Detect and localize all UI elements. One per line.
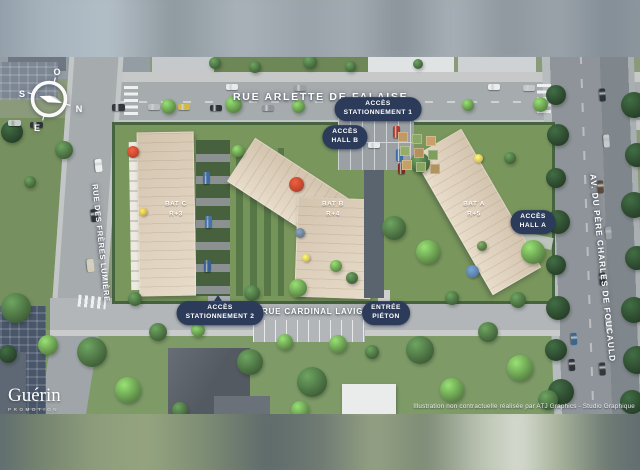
compass-e: E — [34, 123, 40, 133]
entree-pieton-badge: ENTRÉE PIÉTON — [362, 301, 410, 325]
building-label-bat-b: BAT B R+4 — [322, 199, 344, 218]
access-hall-b-badge: ACCÈS HALL B — [322, 125, 367, 149]
access-hall-a-badge: ACCÈS HALL A — [511, 210, 556, 234]
site-plan-image: RUE ARLETTE DE FALAISE RUE CARDINAL LAVI… — [0, 0, 640, 470]
compass-rose-icon: O S E N — [17, 67, 83, 133]
compass-o: O — [53, 67, 60, 77]
illustration-credit: Illustration non contractuelle réalisée … — [413, 403, 635, 410]
access-stationnement-1-badge: ACCÈS STATIONNEMENT 1 — [335, 97, 422, 121]
developer-logo-subtitle: PROMOTION — [8, 407, 61, 412]
compass-n: N — [76, 104, 83, 114]
street-name-av-du-pere-charles-de-foucauld: AV. DU PÈRE CHARLES DE FOUCAULD — [588, 173, 618, 362]
developer-logo-name: Guérin — [8, 386, 61, 405]
compass-s: S — [19, 89, 25, 99]
street-name-rue-des-freres-lumiere: RUE DES FRÈRES LUMIÈRE — [90, 184, 111, 303]
access-stationnement-2-badge: ACCÈS STATIONNEMENT 2 — [177, 301, 264, 325]
developer-logo: Guérin PROMOTION — [8, 386, 61, 412]
access-pointer-triangle — [214, 295, 222, 301]
building-label-bat-a: BAT A R+5 — [463, 199, 485, 218]
building-label-bat-c: BAT C R+3 — [165, 199, 187, 218]
